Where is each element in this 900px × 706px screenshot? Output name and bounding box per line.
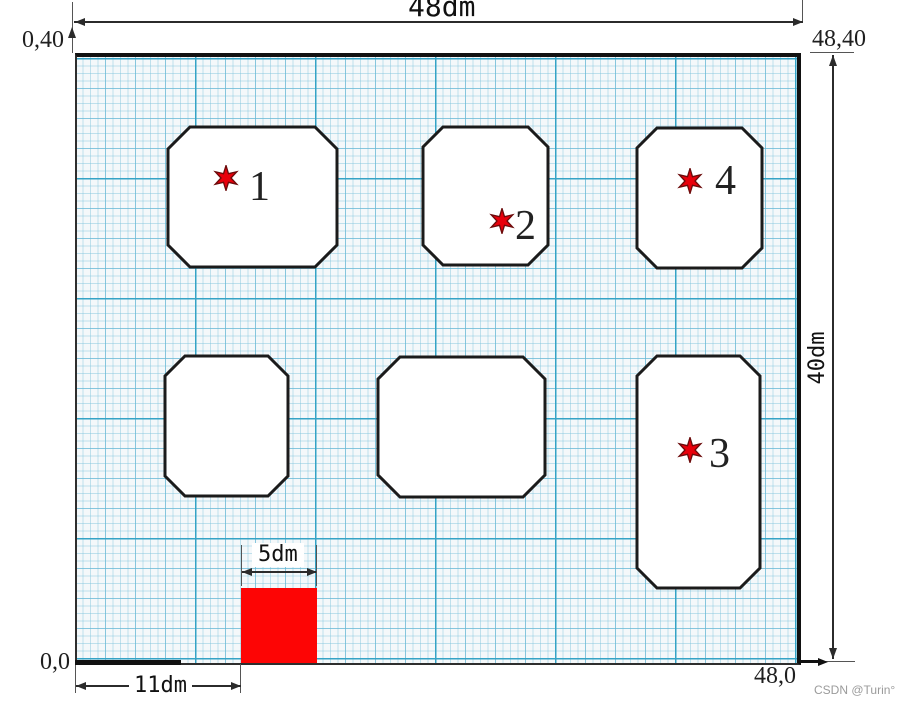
dim-arrow-icon	[242, 568, 252, 576]
dimension-line-5dm	[242, 571, 316, 573]
dimension-line-40dm	[832, 55, 834, 659]
island-3	[635, 354, 762, 590]
island-6	[376, 355, 547, 499]
watermark: CSDN @Turin°	[814, 683, 895, 697]
corner-label-top-right: 48,40	[812, 26, 866, 52]
x-axis-arrow-icon	[818, 658, 828, 666]
corner-label-bottom-left: 0,0	[40, 649, 70, 675]
corner-label-top-left: 0,40	[22, 27, 64, 53]
corner-label-bottom-right: 48,0	[754, 663, 796, 689]
bottom-wall-segment	[75, 660, 181, 665]
dim-arrow-icon	[829, 55, 837, 66]
dim-arrow-icon	[307, 568, 317, 576]
right-dimension-label: 40dm	[806, 316, 830, 400]
star-icon	[677, 168, 703, 199]
marker-3-label: 3	[709, 433, 730, 475]
witness-line	[810, 52, 854, 53]
witness-line	[316, 545, 317, 586]
top-dimension-label: 48dm	[408, 0, 475, 21]
square-dimension-label: 5dm	[252, 543, 304, 567]
x-axis-line	[801, 660, 819, 663]
dim-arrow-icon	[231, 682, 241, 690]
dimensioned-field-diagram: 1 2 4 3 5dm 11dm 48dm 40dm 0,40 48,40 0,…	[0, 0, 900, 706]
witness-line	[241, 545, 242, 586]
star-icon	[489, 208, 515, 239]
offset-dimension-label: 11dm	[129, 674, 192, 698]
dim-arrow-icon	[75, 18, 85, 26]
dim-arrow-icon	[76, 682, 86, 690]
marker-1-label: 1	[249, 166, 270, 208]
start-square	[241, 588, 317, 663]
island-5	[163, 354, 290, 498]
marker-4-label: 4	[715, 160, 736, 202]
dim-arrow-icon	[793, 18, 803, 26]
dim-arrow-icon	[829, 648, 837, 659]
star-icon	[677, 437, 703, 468]
marker-2-label: 2	[515, 205, 536, 247]
star-icon	[213, 165, 239, 196]
y-axis-arrow-icon	[68, 27, 76, 38]
